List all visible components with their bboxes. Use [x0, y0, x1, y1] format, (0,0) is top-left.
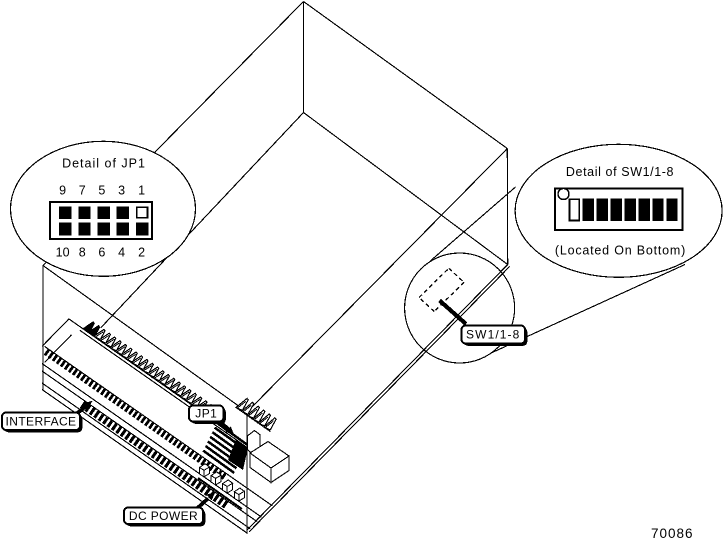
- svg-text:INTERFACE: INTERFACE: [6, 414, 77, 428]
- svg-text:9: 9: [59, 184, 66, 198]
- svg-text:Detail of SW1/1-8: Detail of SW1/1-8: [566, 165, 674, 179]
- svg-text:7: 7: [79, 184, 86, 198]
- svg-text:(Located On Bottom): (Located On Bottom): [555, 244, 686, 258]
- svg-text:DC POWER: DC POWER: [129, 509, 198, 523]
- svg-text:JP1: JP1: [195, 407, 217, 421]
- svg-text:8: 8: [79, 246, 86, 260]
- svg-text:5: 5: [98, 184, 105, 198]
- svg-text:10: 10: [56, 246, 70, 260]
- svg-text:4: 4: [118, 246, 125, 260]
- svg-text:Detail of JP1: Detail of JP1: [62, 157, 146, 171]
- svg-text:2: 2: [138, 246, 145, 260]
- svg-text:70086: 70086: [651, 526, 694, 541]
- svg-text:3: 3: [118, 184, 125, 198]
- svg-text:6: 6: [98, 246, 105, 260]
- svg-text:SW1/1-8: SW1/1-8: [466, 328, 520, 342]
- svg-text:1: 1: [138, 184, 145, 198]
